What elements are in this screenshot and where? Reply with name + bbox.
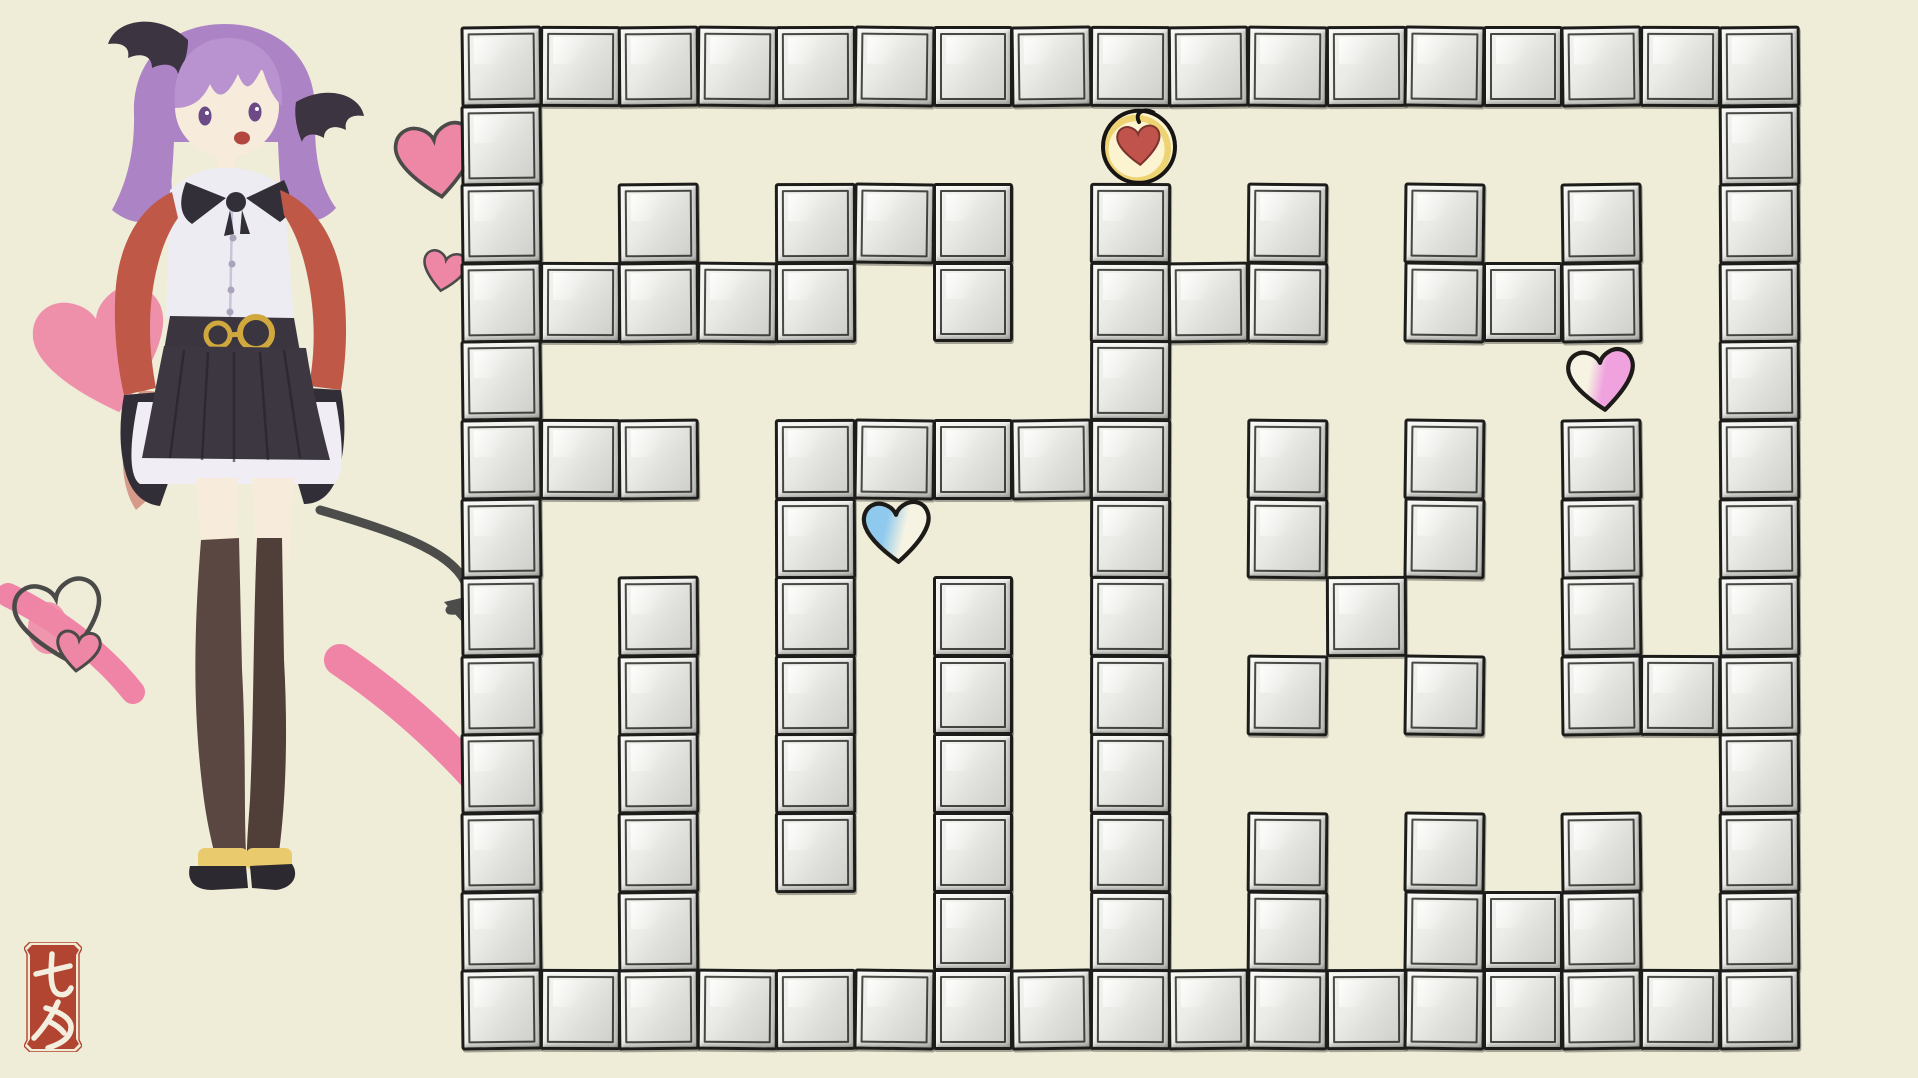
blue-heart-collectible[interactable]	[855, 493, 939, 573]
token-layer	[0, 0, 1918, 1078]
player-heart-token[interactable]	[1099, 106, 1179, 186]
blue-heart-icon	[863, 501, 931, 563]
pink-heart-icon	[1566, 347, 1637, 413]
pink-heart-collectible[interactable]	[1560, 341, 1644, 421]
game-stage	[0, 0, 1918, 1078]
